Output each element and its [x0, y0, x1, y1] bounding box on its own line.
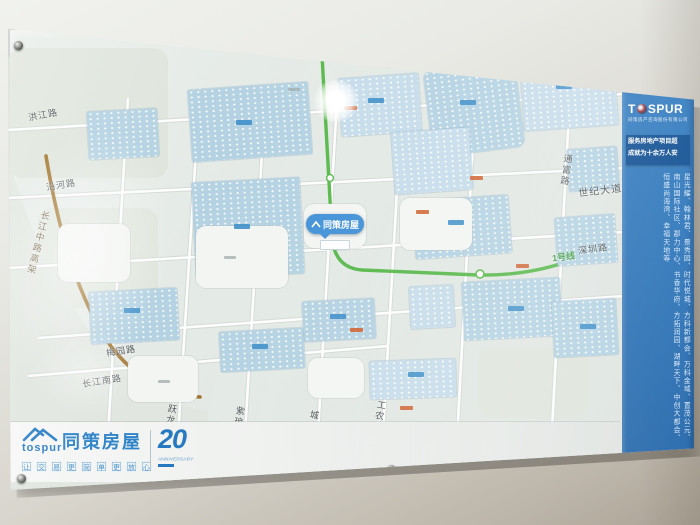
poi-label-chip [350, 328, 363, 332]
facility-label-chip [158, 380, 170, 383]
projects-list-wrap: 星光耀、翰林君、景秀园、时代悦城、方科新都会、万科金域、置茂公元、南山国际社区、… [625, 173, 691, 443]
tagline-box: 单 [97, 462, 106, 471]
store-marker-label: 同策房屋 [323, 218, 359, 231]
store-marker-bubble: 同策房屋 [306, 214, 364, 234]
poi-label-chip [470, 176, 483, 180]
metro-station-dot [476, 270, 484, 278]
tospur-roof-icon [22, 424, 60, 442]
roof-icon [311, 220, 321, 228]
tagline-box: 更 [67, 462, 76, 471]
projects-list: 星光耀、翰林君、景秀园、时代悦城、方科新都会、万科金域、置茂公元、南山国际社区、… [625, 173, 691, 443]
brand-letter-t: T [628, 102, 636, 116]
community-label-chip [580, 324, 596, 329]
screw [17, 474, 26, 483]
tagline-box: 放 [127, 462, 136, 471]
community-block [369, 359, 456, 400]
tagline-box: 简 [82, 462, 91, 471]
community-label-chip [236, 120, 252, 125]
footer-tagline-boxes: 让 交 易 更 简 单 更 放 心 [20, 460, 153, 473]
community-label-chip [252, 344, 268, 349]
tospur-logo: T SPUR [628, 102, 694, 116]
brand-subtext: 同策房产咨询股份有限公司 [628, 116, 693, 123]
tagline-box: 更 [112, 462, 121, 471]
store-marker-subchip [320, 240, 350, 250]
community-block [391, 127, 473, 194]
photo-of-map-board: { "sidebar": { "brand_left": "T", "brand… [0, 0, 700, 525]
poi-label-chip [516, 264, 529, 268]
community-block [302, 298, 376, 342]
tagline-box: 让 [22, 462, 31, 471]
flash-glare [313, 80, 359, 122]
brand-letters-spur: SPUR [648, 102, 683, 116]
facility-label-chip [224, 256, 236, 259]
community-label-chip [368, 98, 384, 103]
anniversary-text: ANNIVERSARY [158, 456, 193, 462]
community-label-chip [330, 314, 346, 319]
park-blob [196, 226, 288, 288]
community-label-chip [448, 220, 464, 225]
footer-brand-cn: 同策房屋 [62, 428, 142, 454]
info-sidebar: T SPUR 同策房产咨询股份有限公司 服务房地产项目超 成就为十余万人安 星光… [622, 90, 694, 462]
banner-line-2: 成就为十余万人安 [628, 150, 688, 157]
footer-brand-en: tospur [22, 442, 62, 454]
community-label-chip [556, 84, 572, 89]
community-label-chip [460, 100, 476, 105]
community-label-chip [234, 224, 250, 229]
metro-station-dot [327, 175, 334, 182]
screw [384, 57, 393, 66]
community-block [520, 55, 619, 131]
park-blob [308, 358, 364, 398]
poi-label-chip [400, 406, 413, 410]
banner-line-1: 服务房地产项目超 [628, 138, 688, 145]
community-block [219, 328, 305, 372]
facility-label-chip [288, 88, 300, 91]
community-label-chip [508, 306, 524, 311]
achievement-banner: 服务房地产项目超 成就为十余万人安 [626, 135, 690, 165]
tagline-box: 交 [37, 462, 46, 471]
anniversary-number: 20 [158, 424, 186, 455]
community-block [409, 285, 455, 329]
footer-divider [150, 430, 151, 466]
low-reflection [28, 328, 148, 418]
community-label-chip [408, 372, 424, 377]
globe-icon [637, 104, 647, 114]
tagline-box: 易 [52, 462, 61, 471]
anniversary-bar [158, 464, 174, 467]
screw [14, 41, 23, 50]
map-board: 洪江路 沿河路 长江中路高架 梅园路 长江南路 跃龙路 紫琅路 城山路 工农南路… [8, 28, 694, 490]
metro-line-label: 1号线 [551, 249, 575, 265]
poi-label-chip [416, 210, 429, 214]
